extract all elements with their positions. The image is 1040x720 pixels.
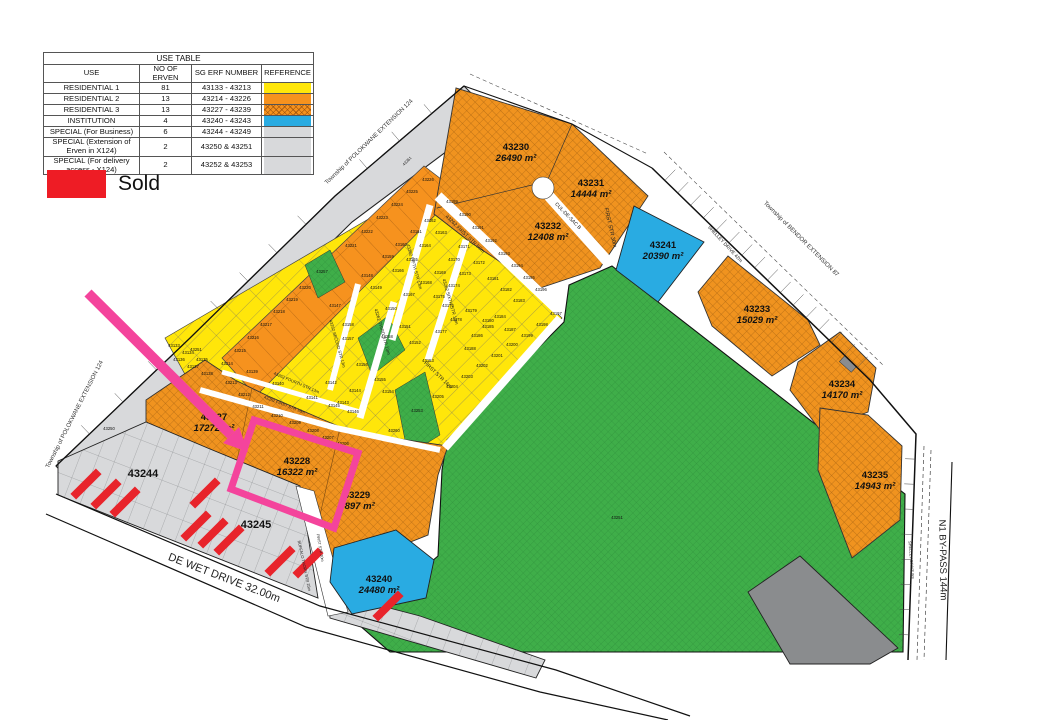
erf-label: 43135 xyxy=(196,357,208,362)
erf-label: 43210 xyxy=(271,413,283,418)
boundary-tick xyxy=(716,220,726,231)
erf-label: 43260 xyxy=(388,428,400,433)
cell-erf: 43214 - 43226 xyxy=(192,94,262,105)
erf-label: 43158 xyxy=(342,322,354,327)
plot-area-label: 26490 m² xyxy=(495,153,538,164)
plot-number-label: 43230 xyxy=(503,142,529,153)
col-header-use: USE xyxy=(44,65,140,83)
erf-label: 43167 xyxy=(403,292,415,297)
erf-label: 43184 xyxy=(494,314,506,319)
erf-label: 43189 xyxy=(446,199,458,204)
erf-label: 43173 xyxy=(459,271,471,276)
erf-label: 43215 xyxy=(234,348,246,353)
erf-label: 43257 xyxy=(316,269,328,274)
erf-label: 43181 xyxy=(487,276,499,281)
erf-label: 43193 xyxy=(498,251,510,256)
erf-label: 43166 xyxy=(392,268,404,273)
street-label: SHELLEY DRIVE 9m xyxy=(907,541,915,580)
erf-label: 43162 xyxy=(424,218,436,223)
cell-use: SPECIAL (For Business) xyxy=(44,127,140,138)
plot-number-label: 43241 xyxy=(650,240,677,251)
erf-label: 43183 xyxy=(513,298,525,303)
erf-label: 43147 xyxy=(329,303,341,308)
erf-label: 43195 xyxy=(523,275,535,280)
col-header-erf: SG ERF NUMBER xyxy=(192,65,262,83)
col-header-ref: REFERENCE xyxy=(262,65,314,83)
plot-number-label: 43234 xyxy=(829,379,856,390)
cell-count: 81 xyxy=(140,83,192,94)
erf-label: 43174 xyxy=(448,283,460,288)
erf-label: 43172 xyxy=(473,260,485,265)
erf-label: 43138 xyxy=(201,371,213,376)
erf-label: 43217 xyxy=(260,322,272,327)
boundary-tick xyxy=(240,273,248,282)
erf-label: 43200 xyxy=(506,342,518,347)
erf-label: 43151 xyxy=(399,324,411,329)
erf-label: 43194 xyxy=(511,263,523,268)
erf-label: 43146 xyxy=(347,409,359,414)
plot-area-label: 12408 m² xyxy=(528,232,570,243)
erf-label: 43211 xyxy=(252,404,264,409)
erf-label: 43196 xyxy=(535,287,547,292)
erf-label: 43171 xyxy=(458,244,470,249)
use-table-row: RESIDENTIAL 18143133 - 43213 xyxy=(44,83,314,94)
boundary-tick xyxy=(690,195,700,206)
erf-label: 43177 xyxy=(435,329,447,334)
boundary-tick xyxy=(81,425,89,434)
erf-label: 43205 xyxy=(432,394,444,399)
cell-erf: 43252 & 43253 xyxy=(192,156,262,174)
street-label: N1 BY-PASS 144m xyxy=(936,519,948,600)
boundary-tick xyxy=(269,244,277,253)
erf-label: 43212 xyxy=(238,392,250,397)
erf-label: 43253 xyxy=(411,408,423,413)
erf-label: 43156 xyxy=(356,362,368,367)
boundary-tick xyxy=(806,307,816,318)
boundary-tick xyxy=(755,257,765,268)
sold-legend: Sold xyxy=(47,170,160,198)
boundary-tick xyxy=(665,170,675,181)
erf-label: 43192 xyxy=(485,238,497,243)
plot-area-label: 14444 m² xyxy=(571,189,613,200)
erf-label: 43199 xyxy=(521,333,533,338)
erf-label: 43164 xyxy=(419,243,431,248)
use-table-row: SPECIAL (For Business)643244 - 43249 xyxy=(44,127,314,138)
erf-label: 43223 xyxy=(376,215,388,220)
erf-label: 43250 xyxy=(103,426,115,431)
erf-label: 43203 xyxy=(461,374,473,379)
erf-label: 43139 xyxy=(246,369,258,374)
plot-number-label: 43235 xyxy=(862,470,889,481)
erf-label: 43222 xyxy=(361,229,373,234)
erf-label: 43202 xyxy=(476,363,488,368)
erf-label: 43136 xyxy=(173,357,185,362)
boundary-tick xyxy=(392,132,400,141)
boundary-tick xyxy=(742,245,752,256)
use-table-row: SPECIAL (Extension of Erven in X124)2432… xyxy=(44,138,314,156)
erf-label: 43220 xyxy=(299,285,311,290)
erf-label: 43191 xyxy=(472,225,484,230)
erf-label: 43142 xyxy=(325,380,337,385)
erf-label: 43218 xyxy=(273,309,285,314)
boundary-tick xyxy=(703,207,713,218)
plot-area-label: 20390 m² xyxy=(642,251,685,262)
township-label: Township of BENDOR EXTENSION 87 xyxy=(762,201,840,279)
boundary-tick xyxy=(819,319,829,330)
erf-label: 43251 xyxy=(190,347,202,352)
erf-label: 43208 xyxy=(307,428,319,433)
erf-label: 43155 xyxy=(374,377,386,382)
plot-number-label: 43244 xyxy=(128,468,159,480)
cell-reference-swatch xyxy=(262,138,314,156)
erf-label: 43190 xyxy=(459,212,471,217)
cul-de-sac-circle xyxy=(532,177,554,199)
erf-label: 43159 xyxy=(382,254,394,259)
cell-use: RESIDENTIAL 2 xyxy=(44,94,140,105)
erf-label: 43216 xyxy=(247,335,259,340)
boundary-tick xyxy=(729,232,739,243)
plot-number-label: 43245 xyxy=(241,519,272,531)
boundary-tick xyxy=(678,182,688,193)
use-table-row: INSTITUTION443240 - 43243 xyxy=(44,116,314,127)
use-table-row: RESIDENTIAL 31343227 - 43239 xyxy=(44,105,314,116)
erf-label: 43188 xyxy=(464,346,476,351)
cell-erf: 43250 & 43251 xyxy=(192,138,262,156)
erf-label: 43154 xyxy=(382,389,394,394)
cell-count: 6 xyxy=(140,127,192,138)
erf-label: 43133 xyxy=(168,343,180,348)
plot-number-label: 43228 xyxy=(284,456,310,467)
cell-erf: 43227 - 43239 xyxy=(192,105,262,116)
cell-use: RESIDENTIAL 3 xyxy=(44,105,140,116)
erf-label: 43170 xyxy=(448,257,460,262)
cell-reference-swatch xyxy=(262,105,314,116)
plot-number-label: 43233 xyxy=(744,304,770,315)
erf-label: 43187 xyxy=(504,327,516,332)
boundary-tick xyxy=(767,269,777,280)
cell-reference-swatch xyxy=(262,156,314,174)
erf-label: 43221 xyxy=(345,243,357,248)
erf-label: 43185 xyxy=(482,324,494,329)
cell-erf: 43240 - 43243 xyxy=(192,116,262,127)
use-table-title: USE TABLE xyxy=(44,53,314,65)
boundary-tick xyxy=(359,159,367,168)
erf-label: 43163 xyxy=(435,230,447,235)
erf-label: 43219 xyxy=(286,297,298,302)
erf-label: 43186 xyxy=(471,333,483,338)
erf-label: 43140 xyxy=(272,381,284,386)
erf-label: 43182 xyxy=(500,287,512,292)
erf-label: 43226 xyxy=(422,177,434,182)
sold-label: Sold xyxy=(118,172,160,196)
cell-count: 2 xyxy=(140,138,192,156)
erf-label: 43175 xyxy=(433,294,445,299)
sold-color-swatch xyxy=(47,170,106,198)
boundary-tick xyxy=(211,301,219,310)
erf-label: 43141 xyxy=(306,395,318,400)
boundary-tick xyxy=(115,393,123,402)
plot-area-label: 15029 m² xyxy=(737,315,779,326)
cell-use: INSTITUTION xyxy=(44,116,140,127)
cell-reference-swatch xyxy=(262,127,314,138)
erf-label: 43144 xyxy=(349,388,361,393)
erf-label: 43179 xyxy=(465,308,477,313)
street-label: SHELLEY DRIVE 42m xyxy=(706,225,743,264)
plot-area-label: 24480 m² xyxy=(358,585,401,596)
erf-label: 43169 xyxy=(434,270,446,275)
erf-label: 43145 xyxy=(328,403,340,408)
erf-label: 43251 xyxy=(611,515,623,520)
erf-label: 43149 xyxy=(370,285,382,290)
cell-reference-swatch xyxy=(262,94,314,105)
cell-reference-swatch xyxy=(262,116,314,127)
erf-label: 43213 xyxy=(225,380,237,385)
cell-use: RESIDENTIAL 1 xyxy=(44,83,140,94)
cell-count: 13 xyxy=(140,94,192,105)
erf-label: 43148 xyxy=(361,273,373,278)
erf-label: 43137 xyxy=(187,364,199,369)
cell-use: SPECIAL (Extension of Erven in X124) xyxy=(44,138,140,156)
erf-label: 43180 xyxy=(482,318,494,323)
erf-label: 43150 xyxy=(385,306,397,311)
cell-count: 13 xyxy=(140,105,192,116)
erf-label: 43225 xyxy=(406,189,418,194)
cell-erf: 43133 - 43213 xyxy=(192,83,262,94)
boundary-tick xyxy=(298,216,306,225)
erf-label: 43161 xyxy=(410,229,422,234)
plot-number-label: 43240 xyxy=(366,574,392,585)
plot-area-label: 14170 m² xyxy=(822,390,864,401)
boundary-tick xyxy=(780,282,790,293)
erf-label: 43198 xyxy=(536,322,548,327)
erf-label: 43209 xyxy=(289,420,301,425)
erf-label: 43224 xyxy=(391,202,403,207)
cell-erf: 43244 - 43249 xyxy=(192,127,262,138)
col-header-count: NO OF ERVEN xyxy=(140,65,192,83)
boundary-tick xyxy=(793,294,803,305)
cell-reference-swatch xyxy=(262,83,314,94)
erf-label: 43157 xyxy=(342,336,354,341)
use-table: USE TABLE USE NO OF ERVEN SG ERF NUMBER … xyxy=(43,52,314,175)
erf-label: 43214 xyxy=(221,361,233,366)
plot-number-label: 43231 xyxy=(578,178,605,189)
cell-count: 4 xyxy=(140,116,192,127)
plot-area-label: 16322 m² xyxy=(277,467,319,478)
erf-label: 43197 xyxy=(550,311,562,316)
boundary-tick xyxy=(424,104,432,113)
erf-label: 43201 xyxy=(491,353,503,358)
plot-number-label: 43232 xyxy=(535,221,561,232)
erf-label: 43152 xyxy=(409,340,421,345)
plot-area-label: 14943 m² xyxy=(855,481,897,492)
use-table-row: RESIDENTIAL 21343214 - 43226 xyxy=(44,94,314,105)
